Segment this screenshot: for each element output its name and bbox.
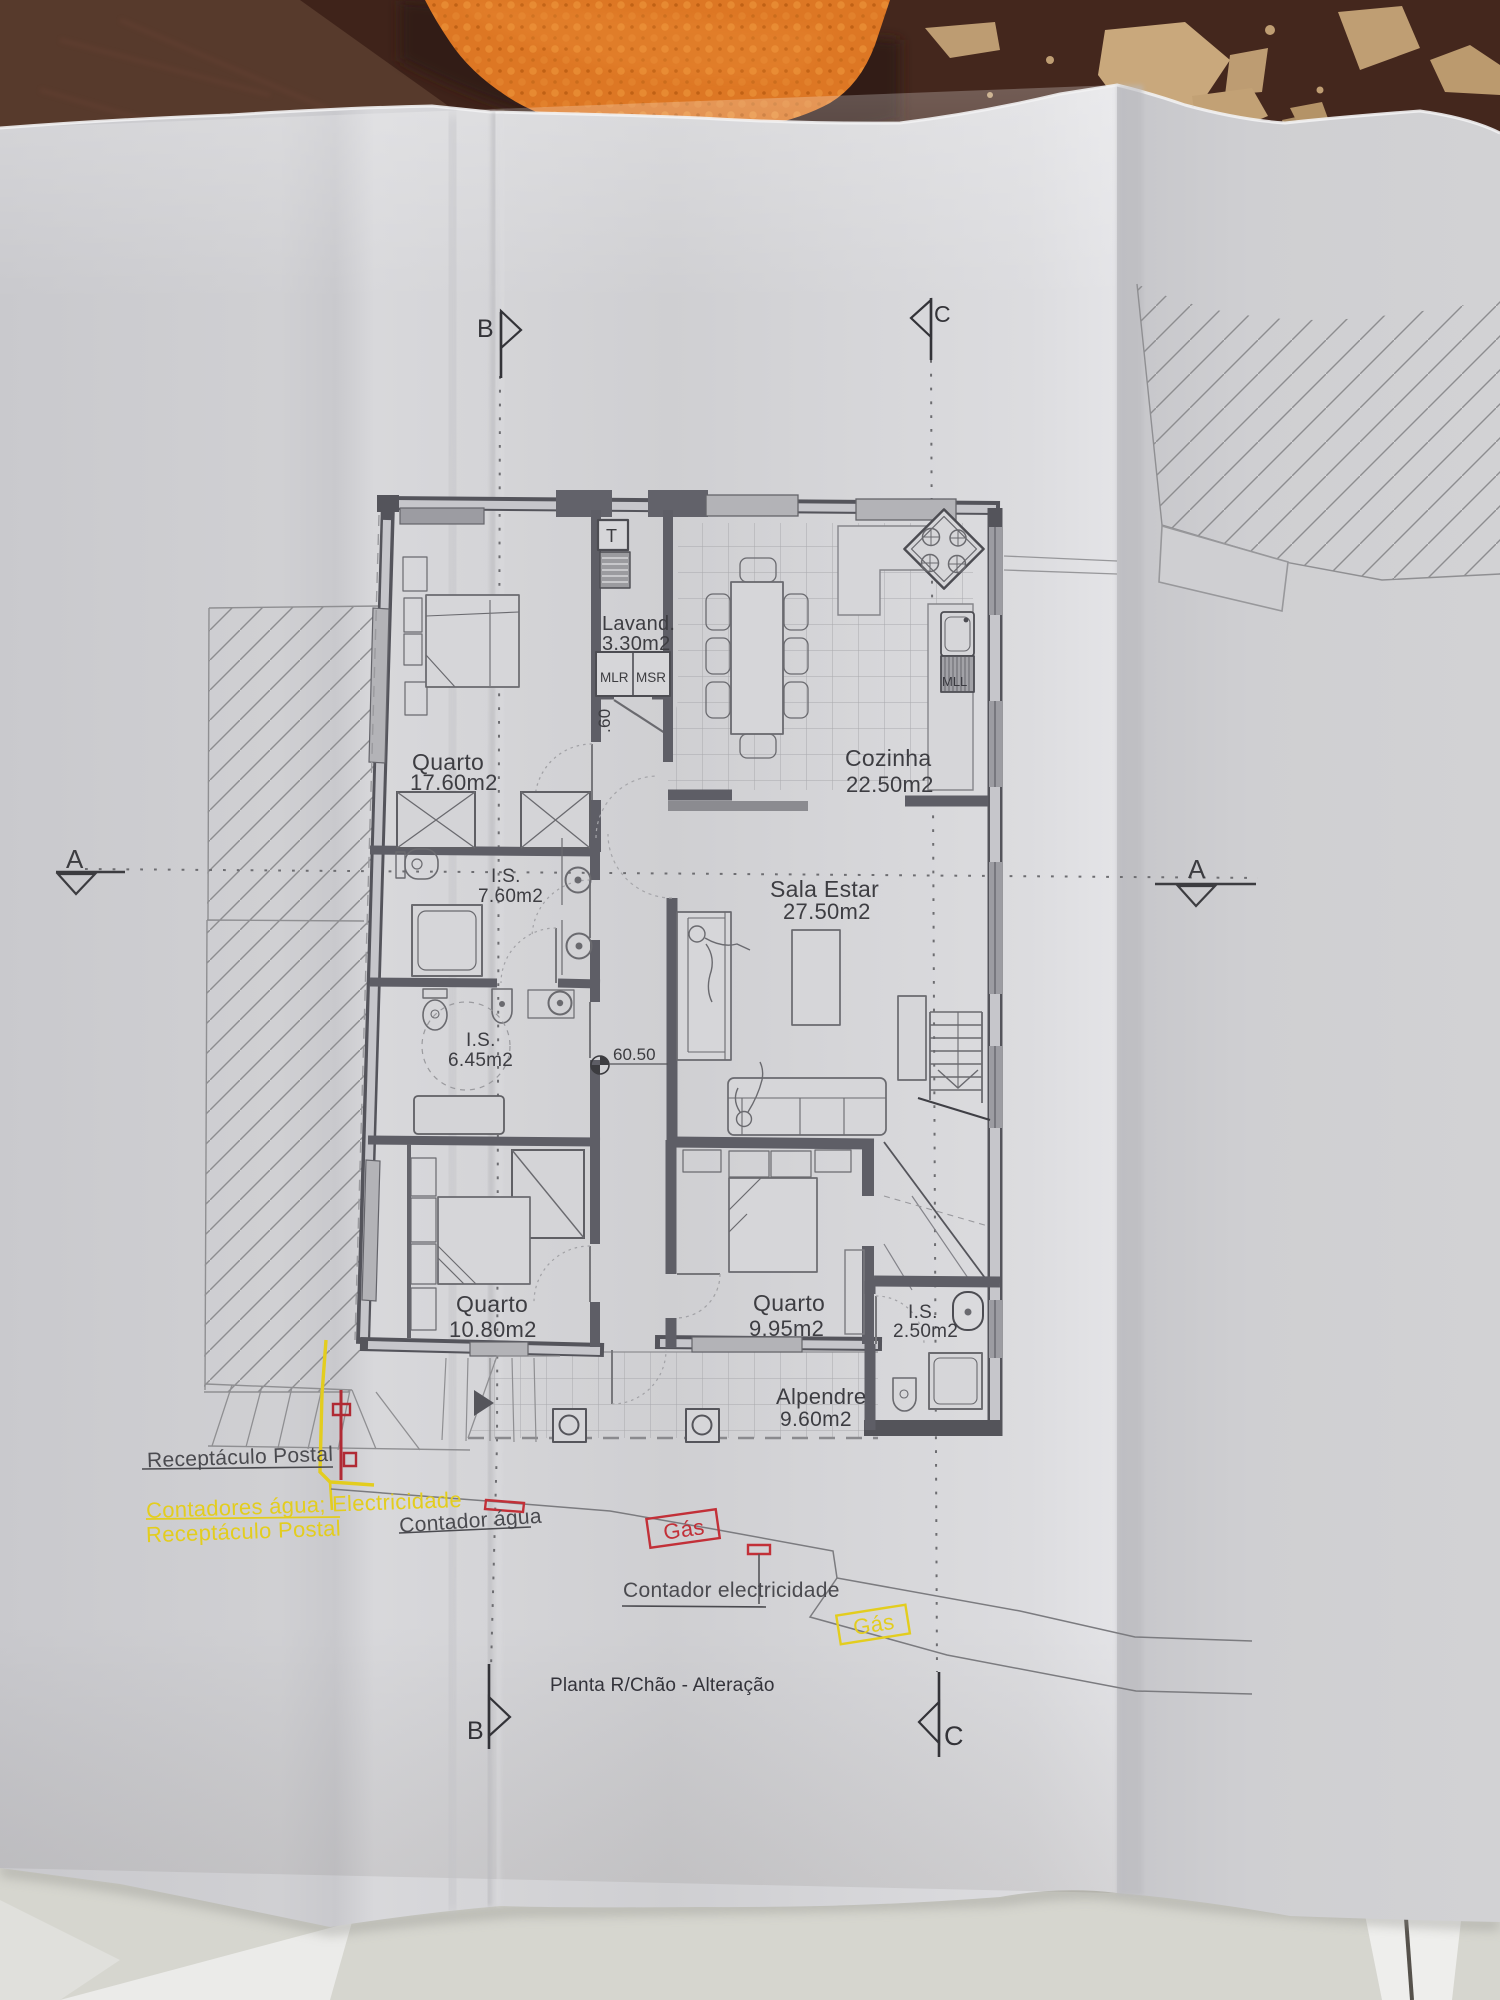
svg-text:9.60m2: 9.60m2 <box>780 1408 852 1431</box>
svg-text:3.30m2: 3.30m2 <box>602 633 671 655</box>
svg-text:6.45m2: 6.45m2 <box>448 1050 513 1071</box>
svg-text:B: B <box>467 1717 484 1745</box>
svg-text:I.S.: I.S. <box>908 1302 938 1323</box>
svg-text:B: B <box>477 315 494 343</box>
svg-text:60.50: 60.50 <box>613 1045 656 1064</box>
svg-text:Alpendre: Alpendre <box>776 1384 866 1409</box>
svg-text:Cozinha: Cozinha <box>845 745 932 771</box>
svg-text:17.60m2: 17.60m2 <box>410 770 498 795</box>
svg-text:A: A <box>66 844 84 874</box>
svg-text:T: T <box>606 526 617 546</box>
svg-text:I.S.: I.S. <box>466 1030 496 1051</box>
svg-text:Planta R/Chão - Alteração: Planta R/Chão - Alteração <box>550 1675 775 1696</box>
svg-text:Contador electricidade: Contador electricidade <box>623 1579 840 1602</box>
svg-text:Lavand.: Lavand. <box>602 613 675 635</box>
svg-text:9.95m2: 9.95m2 <box>749 1316 824 1341</box>
svg-text:7.60m2: 7.60m2 <box>478 886 543 907</box>
svg-text:22.50m2: 22.50m2 <box>846 772 934 797</box>
svg-text:C: C <box>944 1721 964 1751</box>
svg-text:27.50m2: 27.50m2 <box>783 899 871 924</box>
svg-text:C: C <box>934 301 951 327</box>
svg-text:.60: .60 <box>595 708 614 733</box>
svg-text:A: A <box>1188 854 1206 884</box>
svg-text:2.50m2: 2.50m2 <box>893 1321 958 1342</box>
svg-text:10.80m2: 10.80m2 <box>449 1317 537 1342</box>
svg-text:MSR: MSR <box>636 670 666 685</box>
svg-text:Quarto: Quarto <box>753 1290 825 1316</box>
svg-text:Quarto: Quarto <box>456 1291 528 1317</box>
svg-text:I.S.: I.S. <box>491 866 521 887</box>
svg-text:MLR: MLR <box>600 670 629 685</box>
svg-text:MLL: MLL <box>942 674 967 689</box>
